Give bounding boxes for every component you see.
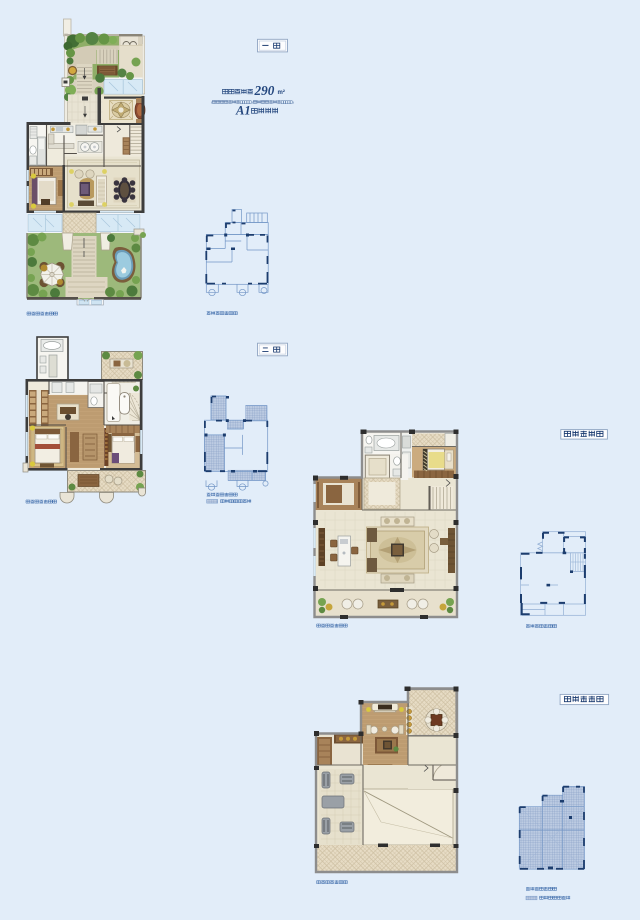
svg-text:A1: A1 bbox=[235, 103, 251, 117]
svg-text:m²: m² bbox=[278, 89, 285, 96]
svg-text:290: 290 bbox=[254, 83, 275, 98]
